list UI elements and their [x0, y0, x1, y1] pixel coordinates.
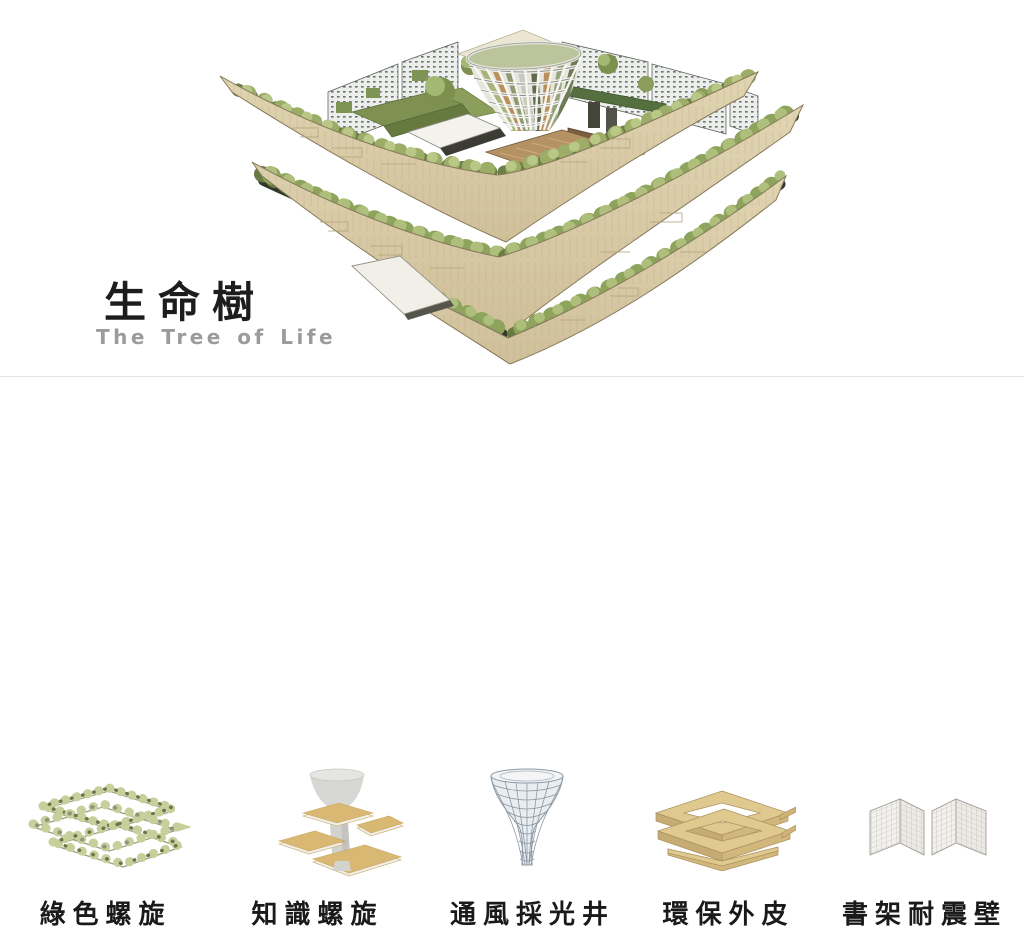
feature-label-bookshelf-wall: 書架耐震壁	[835, 894, 1007, 931]
features-strip: 綠色螺旋 知識螺旋 通風採光井 環保外皮 書架耐震壁	[0, 377, 1024, 569]
hero-section: 生命樹 The Tree of Life	[0, 0, 1024, 376]
feature-label-eco-skin: 環保外皮	[655, 894, 794, 931]
presentation-slide: { "page": { "background": "#ffffff", "di…	[0, 0, 1024, 569]
doorway	[588, 102, 600, 128]
feature-label-knowledge-spiral: 知識螺旋	[244, 894, 383, 931]
feature-label-ventilation-well: 通風採光井	[443, 894, 615, 931]
feature-label-green-spiral: 綠色螺旋	[32, 894, 171, 931]
page-subtitle: The Tree of Life	[96, 325, 336, 349]
bookshelf-seismic-wall-diagram	[866, 785, 990, 869]
knowledge-spiral-diagram	[273, 765, 405, 887]
page-title: 生命樹	[104, 280, 266, 326]
ventilation-daylight-well-diagram	[483, 767, 571, 873]
green-spiral-diagram	[25, 769, 191, 881]
funnel-tower	[466, 40, 583, 131]
eco-skin-diagram	[648, 787, 796, 871]
